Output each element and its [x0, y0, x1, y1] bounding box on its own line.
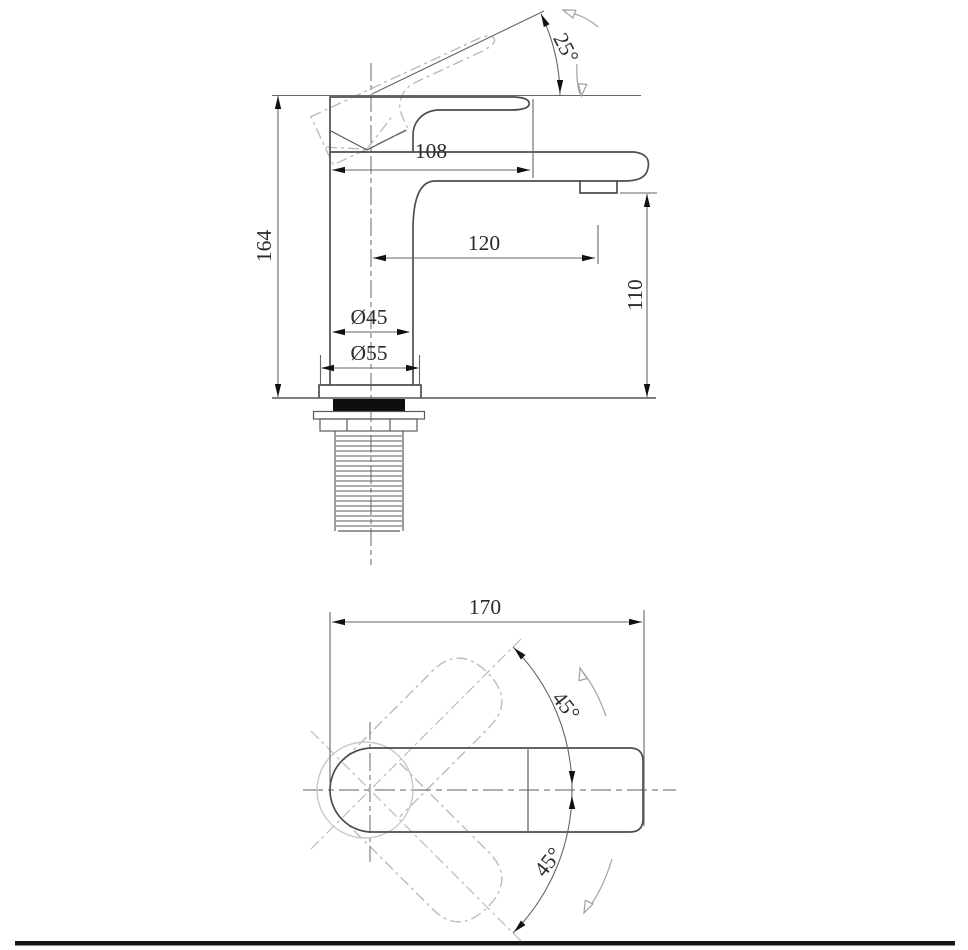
- overall-height-label: 164: [252, 230, 276, 263]
- aerator: [580, 181, 617, 193]
- dim-arrow: [275, 96, 281, 109]
- plan-view: 170 45° 45°: [303, 595, 676, 941]
- handle-length-label: 108: [415, 139, 447, 163]
- dim-arrow: [517, 167, 530, 173]
- arc-arrow: [569, 771, 575, 784]
- dimension-spout-reach: 120: [373, 225, 598, 264]
- faucet-outline: [272, 97, 656, 531]
- mounting-nut: [320, 419, 417, 431]
- dim-arrow: [332, 329, 345, 335]
- swing-direction-arrow-down: [580, 859, 612, 915]
- lift-direction-arrow-down: [577, 64, 587, 96]
- faucet-technical-drawing: 25° 164 108: [0, 0, 968, 950]
- spout-reach-label: 120: [468, 231, 500, 255]
- arc-arrow: [569, 796, 575, 809]
- base-plate: [319, 385, 421, 397]
- arc-arrow: [538, 13, 549, 27]
- mounting-washer: [314, 412, 425, 420]
- threaded-shank: [335, 431, 403, 531]
- dimension-body-diameter: Ø45: [332, 305, 410, 335]
- dimension-spout-height: 110: [620, 193, 657, 397]
- dim-arrow: [373, 255, 386, 261]
- dim-arrow: [332, 619, 345, 625]
- dim-arrow: [397, 329, 410, 335]
- overall-length-label: 170: [469, 595, 501, 619]
- spout-height-label: 110: [623, 279, 647, 310]
- swing-angle-up-label: 45°: [547, 687, 584, 726]
- technical-drawing-page: 25° 164 108: [0, 0, 968, 950]
- dim-arrow: [321, 365, 334, 371]
- side-view: 25° 164 108: [252, 6, 657, 565]
- dimension-overall-length: 170: [330, 595, 644, 826]
- bottom-border-line: [15, 941, 955, 946]
- swing-angle-down-label: 45°: [529, 843, 566, 882]
- dim-arrow: [332, 167, 345, 173]
- dimension-overall-height: 164: [252, 96, 281, 397]
- base-diameter-label: Ø55: [350, 341, 387, 365]
- dim-arrow: [582, 255, 595, 261]
- dim-arrow: [644, 384, 650, 397]
- lift-direction-arrow-up: [562, 6, 598, 27]
- dimension-handle-angle: 25°: [272, 6, 641, 96]
- dim-arrow: [629, 619, 642, 625]
- arc-arrow: [557, 80, 563, 93]
- dim-arrow: [644, 194, 650, 207]
- rubber-gasket: [333, 399, 405, 411]
- dimension-base-diameter: Ø55: [321, 341, 420, 384]
- handle-angle-label: 25°: [548, 29, 583, 67]
- body-diameter-label: Ø45: [350, 305, 387, 329]
- dim-arrow: [275, 384, 281, 397]
